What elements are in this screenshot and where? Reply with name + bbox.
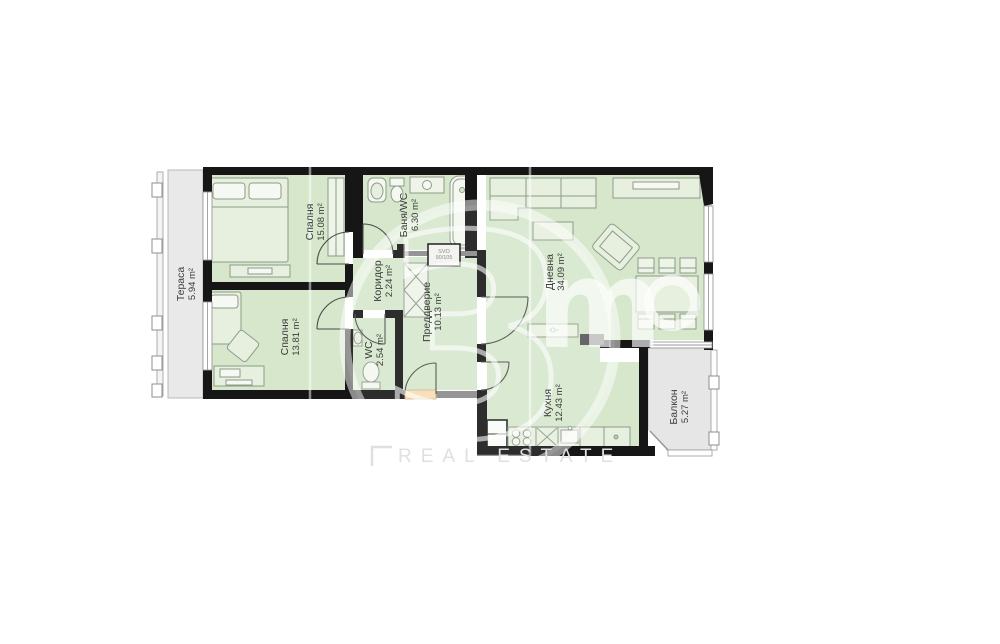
room-area: 34.09 m² bbox=[557, 253, 568, 291]
room-label-living-room: Дневна 34.09 m² bbox=[544, 253, 568, 291]
balcony-railing-bottom bbox=[668, 450, 712, 456]
room-area: 2.54 m² bbox=[376, 334, 387, 366]
room-label-entry-hall: Преддверие 10.13 m² bbox=[421, 282, 445, 342]
tv-unit-icon bbox=[613, 178, 700, 198]
room-area: 2.24 m² bbox=[385, 260, 396, 301]
room-name: Кухня bbox=[542, 384, 554, 422]
desk-icon bbox=[214, 366, 264, 386]
room-label-bathroom: Баня/WC 6.30 m² bbox=[398, 193, 422, 238]
window-living-2 bbox=[704, 274, 713, 330]
window-bedroom-2 bbox=[203, 302, 212, 370]
room-name: Тераса bbox=[175, 267, 187, 301]
room-label-balcony: Балкон 5.27 m² bbox=[668, 389, 692, 424]
room-area: 5.27 m² bbox=[681, 389, 692, 424]
shaft-label: SVO 90/105 bbox=[436, 249, 453, 261]
room-area: 15.08 m² bbox=[317, 203, 328, 241]
room-area: 5.94 m² bbox=[188, 267, 199, 301]
room-name: Спалня bbox=[279, 318, 291, 356]
shaft-label-line2: 90/105 bbox=[436, 255, 453, 261]
room-area: 13.81 m² bbox=[292, 318, 303, 356]
room-label-corridor: Коридор 2.24 m² bbox=[372, 260, 396, 301]
room-area: 10.13 m² bbox=[434, 282, 445, 342]
floor-plan-canvas: 3 m bbox=[0, 0, 1000, 644]
dresser-icon bbox=[230, 265, 290, 277]
watermark-subtext: REAL ESTATE bbox=[398, 446, 622, 468]
room-area: 12.43 m² bbox=[555, 384, 566, 422]
wall-top bbox=[203, 167, 713, 175]
room-name: Дневна bbox=[544, 253, 556, 291]
room-name: Коридор bbox=[372, 260, 384, 301]
window-living-1 bbox=[704, 206, 713, 262]
wardrobe-icon bbox=[328, 178, 344, 256]
room-label-bedroom-1: Спалня 15.08 m² bbox=[304, 203, 328, 241]
floor-plan-page: 3 m Тераса 5.94 m² Спалня 15.08 m² Баня/… bbox=[0, 0, 1000, 644]
room-label-terrace: Тераса 5.94 m² bbox=[175, 267, 199, 301]
room-label-kitchen: Кухня 12.43 m² bbox=[542, 384, 566, 422]
room-area: 6.30 m² bbox=[411, 193, 422, 238]
room-label-wc: WC 2.54 m² bbox=[363, 334, 387, 366]
double-bed-icon bbox=[208, 178, 288, 262]
window-bedroom-1 bbox=[203, 192, 212, 260]
room-name: Преддверие bbox=[421, 282, 433, 342]
room-name: Баня/WC bbox=[398, 193, 410, 238]
room-name: Спалня bbox=[304, 203, 316, 241]
room-name: WC bbox=[363, 334, 375, 366]
room-label-bedroom-2: Спалня 13.81 m² bbox=[279, 318, 303, 356]
room-name: Балкон bbox=[668, 389, 680, 424]
